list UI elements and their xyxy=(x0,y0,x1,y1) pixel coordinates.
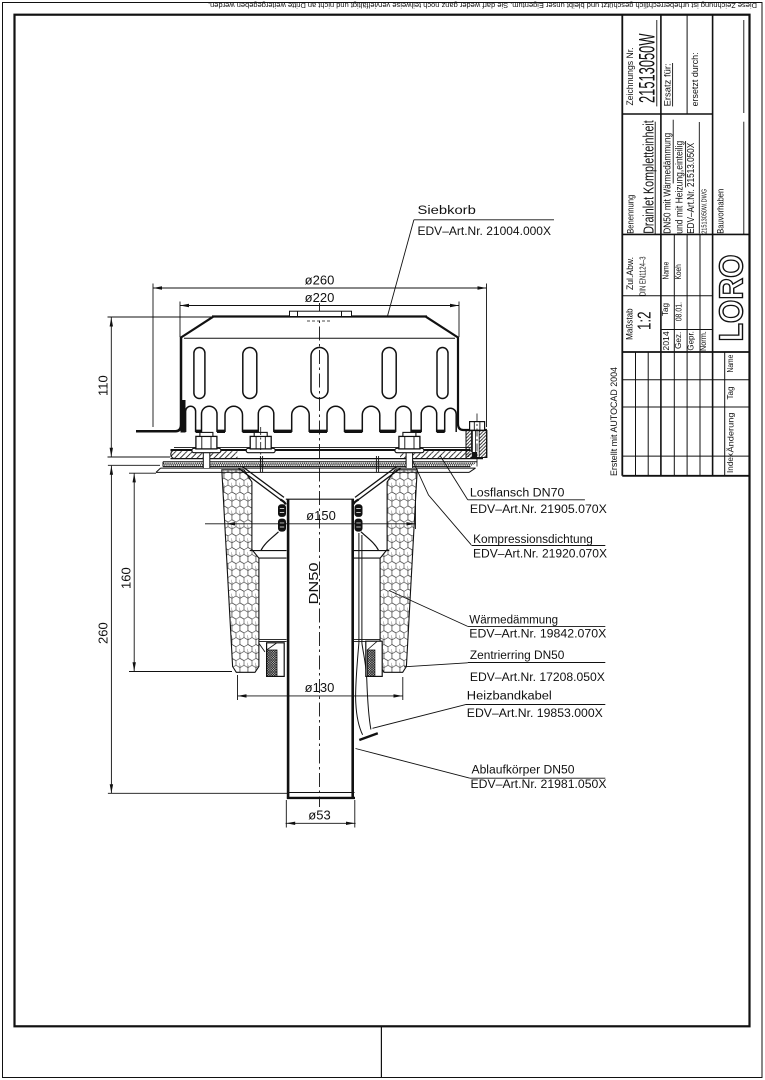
svg-text:EDV–Art.Nr. 19842.070X: EDV–Art.Nr. 19842.070X xyxy=(469,629,606,641)
svg-text:Siebkorb: Siebkorb xyxy=(418,205,476,217)
svg-text:Erstellt mit AUTOCAD 2004: Erstellt mit AUTOCAD 2004 xyxy=(609,367,620,476)
svg-text:und mit Heizung,einteilig: und mit Heizung,einteilig xyxy=(674,141,685,234)
svg-text:Änderung: Änderung xyxy=(725,412,735,452)
svg-text:Gepr.: Gepr. xyxy=(685,331,695,351)
svg-text:1:2: 1:2 xyxy=(635,312,655,331)
svg-text:160: 160 xyxy=(119,567,134,589)
svg-text:EDV–Art.Nr. 21004.000X: EDV–Art.Nr. 21004.000X xyxy=(418,226,552,238)
svg-text:Heizbandkabel: Heizbandkabel xyxy=(467,691,552,703)
svg-text:Losflansch DN70: Losflansch DN70 xyxy=(470,487,565,499)
svg-text:Zul.Abw.: Zul.Abw. xyxy=(625,257,636,290)
svg-text:21513050W: 21513050W xyxy=(635,33,660,103)
svg-text:Index: Index xyxy=(725,452,735,473)
svg-text:Ersatz für:: Ersatz für: xyxy=(663,63,674,106)
svg-text:Name: Name xyxy=(660,261,670,279)
svg-text:ø53: ø53 xyxy=(308,808,330,823)
svg-text:Drainlet Kompletteinheit: Drainlet Kompletteinheit xyxy=(640,120,657,234)
svg-text:DIN EN1124–3: DIN EN1124–3 xyxy=(639,256,648,296)
svg-text:Gez.: Gez. xyxy=(673,332,683,349)
svg-text:260: 260 xyxy=(95,622,110,644)
svg-text:ø150: ø150 xyxy=(306,508,336,523)
svg-text:08.01.: 08.01. xyxy=(673,302,683,321)
svg-text:EDV–Art.Nr. 21513.050X: EDV–Art.Nr. 21513.050X xyxy=(686,143,697,234)
svg-text:DN50 mit Wärmedämmung: DN50 mit Wärmedämmung xyxy=(663,133,674,234)
svg-text:EDV–Art.Nr. 21981.050X: EDV–Art.Nr. 21981.050X xyxy=(471,779,607,791)
svg-text:110: 110 xyxy=(95,375,110,396)
svg-text:Tag: Tag xyxy=(660,303,670,316)
svg-text:LORO: LORO xyxy=(712,255,749,342)
svg-text:EDV–Art.Nr. 17208.050X: EDV–Art.Nr. 17208.050X xyxy=(470,672,605,684)
svg-text:ø130: ø130 xyxy=(305,680,335,695)
svg-text:ø220: ø220 xyxy=(305,290,335,305)
svg-text:EDV–Art.Nr. 21920.070X: EDV–Art.Nr. 21920.070X xyxy=(473,548,607,560)
svg-text:Name: Name xyxy=(725,354,735,372)
svg-text:Zentrierring DN50: Zentrierring DN50 xyxy=(470,650,565,662)
svg-text:Kompressionsdichtung: Kompressionsdichtung xyxy=(473,534,593,546)
svg-text:EDV–Art.Nr. 19853.000X: EDV–Art.Nr. 19853.000X xyxy=(467,708,603,720)
svg-text:Benennung: Benennung xyxy=(625,195,636,234)
svg-text:ersetzt durch:: ersetzt durch: xyxy=(690,52,701,106)
svg-text:Diese Zeichnung ist urheberrec: Diese Zeichnung ist urheberrechtlich ges… xyxy=(208,1,757,10)
svg-text:Tag: Tag xyxy=(725,386,735,399)
svg-text:Ablaufkörper DN50: Ablaufkörper DN50 xyxy=(472,765,575,777)
svg-text:ø260: ø260 xyxy=(305,273,335,288)
svg-text:Wärmedämmung: Wärmedämmung xyxy=(469,615,558,627)
svg-text:2014: 2014 xyxy=(661,331,671,351)
svg-text:21513050W.DWG: 21513050W.DWG xyxy=(700,189,709,234)
svg-text:DN50: DN50 xyxy=(306,563,321,605)
svg-text:Norm.: Norm. xyxy=(698,331,708,351)
svg-text:Bauvorhaben: Bauvorhaben xyxy=(716,189,727,234)
svg-text:Koeh: Koeh xyxy=(673,264,683,279)
svg-text:EDV–Art.Nr. 21905.070X: EDV–Art.Nr. 21905.070X xyxy=(470,504,607,516)
